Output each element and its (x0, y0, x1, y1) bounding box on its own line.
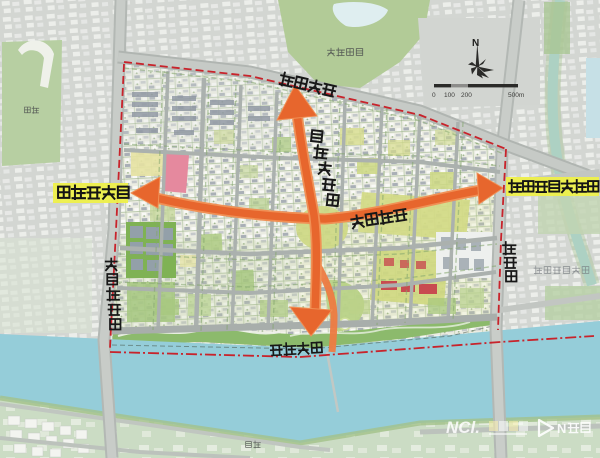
svg-text:NCl.: NCl. (446, 418, 480, 437)
svg-text:100: 100 (444, 92, 455, 99)
svg-text:200: 200 (461, 92, 472, 99)
svg-text:N: N (472, 38, 479, 49)
svg-text:0: 0 (432, 92, 436, 99)
svg-text:500m: 500m (508, 92, 524, 99)
svg-text:N: N (557, 421, 566, 436)
